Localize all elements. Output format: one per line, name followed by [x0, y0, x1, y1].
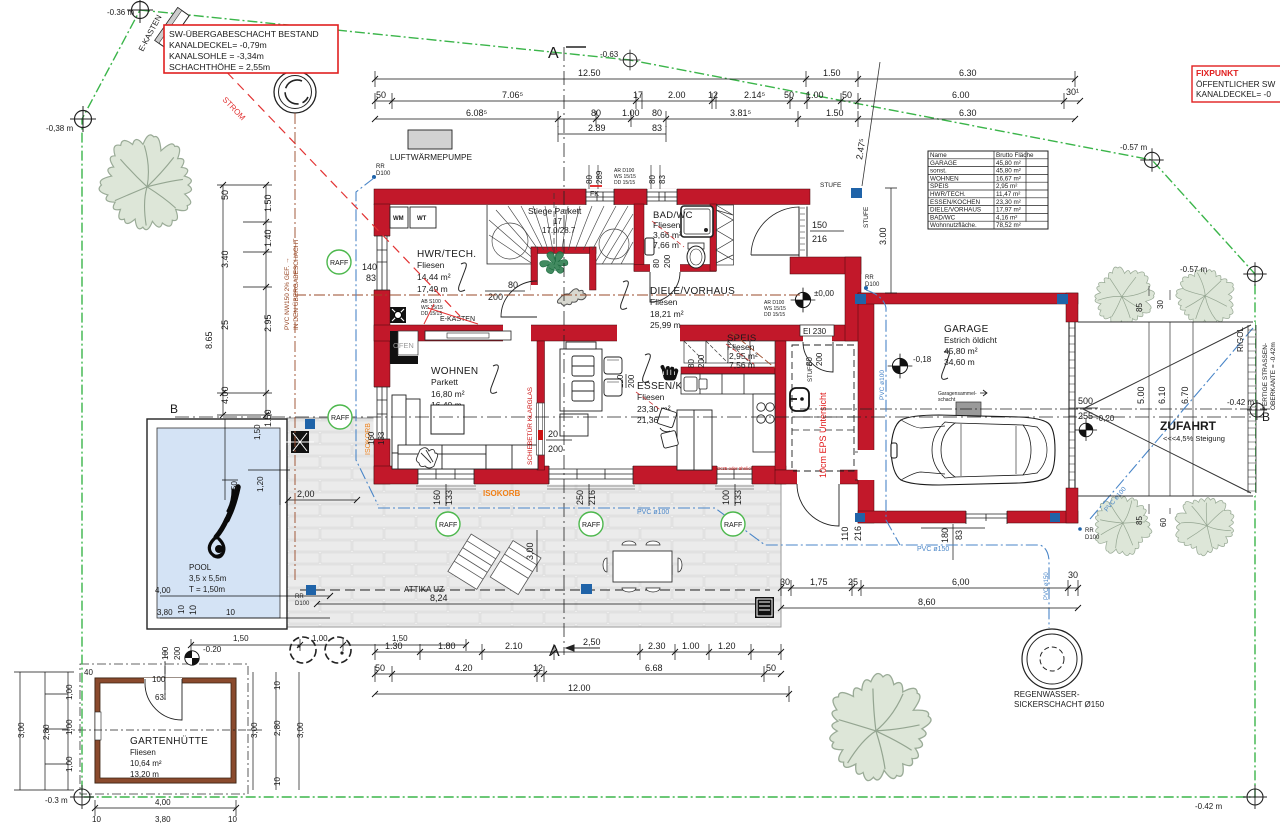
- svg-text:PVC ø100: PVC ø100: [637, 509, 669, 516]
- svg-text:1.00: 1.00: [682, 641, 700, 651]
- svg-text:D100: D100: [376, 171, 391, 177]
- svg-text:schacht: schacht: [938, 397, 956, 403]
- svg-text:10: 10: [228, 815, 237, 824]
- svg-text:14,44 m²: 14,44 m²: [417, 272, 451, 282]
- svg-text:1,50: 1,50: [233, 634, 249, 643]
- svg-text:ESSEN/KOCHEN: ESSEN/KOCHEN: [930, 199, 980, 206]
- svg-text:16,67 m²: 16,67 m²: [996, 175, 1021, 182]
- svg-text:23,30 m²: 23,30 m²: [996, 199, 1021, 206]
- svg-text:10,64 m²: 10,64 m²: [130, 759, 162, 768]
- svg-text:10: 10: [188, 605, 198, 615]
- svg-text:2,50: 2,50: [583, 637, 601, 647]
- svg-text:±0,00: ±0,00: [814, 289, 835, 298]
- svg-text:SCHIEBETÜR KLARGLAS: SCHIEBETÜR KLARGLAS: [526, 386, 534, 465]
- svg-text:4,00: 4,00: [155, 798, 171, 807]
- svg-text:1,00: 1,00: [312, 634, 328, 643]
- svg-text:85: 85: [1135, 303, 1144, 312]
- svg-text:34,60 m: 34,60 m: [944, 357, 975, 367]
- svg-text:50: 50: [784, 90, 794, 100]
- svg-text:2,95 m²: 2,95 m²: [996, 183, 1017, 190]
- svg-text:3,80: 3,80: [155, 815, 171, 824]
- svg-text:ISOKORB: ISOKORB: [483, 489, 521, 498]
- svg-text:LUFTWÄRMEPUMPE: LUFTWÄRMEPUMPE: [390, 152, 473, 162]
- svg-text:D100: D100: [865, 282, 880, 288]
- svg-text:1,50: 1,50: [253, 424, 262, 440]
- svg-text:17,49 m: 17,49 m: [417, 284, 448, 294]
- svg-text:8,60: 8,60: [918, 597, 936, 607]
- svg-text:-0.57 m: -0.57 m: [1120, 143, 1147, 152]
- svg-text:63: 63: [155, 693, 164, 702]
- svg-text:216: 216: [587, 490, 597, 505]
- svg-text:30: 30: [780, 577, 790, 587]
- svg-text:SCHACHTHÖHE = 2,55m: SCHACHTHÖHE = 2,55m: [169, 62, 270, 72]
- svg-text:EI 230: EI 230: [803, 327, 827, 336]
- svg-text:80: 80: [585, 175, 594, 184]
- svg-text:HSK35 oder ähnlich: HSK35 oder ähnlich: [713, 466, 754, 471]
- svg-text:<<<4,5% Steigung: <<<4,5% Steigung: [1163, 434, 1225, 443]
- svg-text:Parkett: Parkett: [431, 377, 459, 387]
- svg-text:1.00: 1.00: [622, 108, 640, 118]
- svg-text:PVC ø150: PVC ø150: [917, 546, 949, 553]
- svg-text:2.95: 2.95: [263, 314, 273, 332]
- svg-text:KANALSOHLE = -3,34m: KANALSOHLE = -3,34m: [169, 51, 264, 61]
- svg-text:2,00: 2,00: [297, 489, 315, 499]
- svg-text:200: 200: [663, 254, 672, 268]
- svg-text:-0,38 m: -0,38 m: [46, 124, 73, 133]
- svg-text:D100: D100: [295, 601, 310, 607]
- svg-text:Brutto Fläche: Brutto Fläche: [996, 152, 1034, 159]
- svg-text:OFEN: OFEN: [393, 341, 414, 350]
- svg-text:1.50: 1.50: [826, 108, 844, 118]
- svg-text:2,80: 2,80: [42, 724, 51, 740]
- svg-text:12.00: 12.00: [568, 683, 591, 693]
- svg-text:100: 100: [161, 646, 170, 660]
- svg-text:-0,20: -0,20: [1096, 414, 1115, 423]
- svg-text:6.68: 6.68: [645, 663, 663, 673]
- svg-text:160: 160: [367, 431, 376, 445]
- svg-text:3,00: 3,00: [296, 722, 305, 738]
- svg-text:6.30: 6.30: [959, 68, 977, 78]
- svg-text:WM: WM: [393, 216, 404, 222]
- svg-text:83: 83: [652, 123, 662, 133]
- svg-text:25: 25: [848, 577, 858, 587]
- svg-text:-0.42 m: -0.42 m: [1195, 802, 1222, 811]
- svg-text:50: 50: [376, 90, 386, 100]
- svg-text:Stiege Parkett: Stiege Parkett: [528, 206, 582, 216]
- svg-text:Wohnnutzfläche.: Wohnnutzfläche.: [930, 222, 977, 229]
- svg-text:STUFE: STUFE: [863, 206, 870, 228]
- svg-text:-0.3 m: -0.3 m: [45, 796, 68, 805]
- svg-text:RR: RR: [865, 275, 874, 281]
- svg-text:50: 50: [375, 663, 385, 673]
- svg-text:16,80 m²: 16,80 m²: [431, 389, 465, 399]
- svg-text:SICKERSCHACHT Ø150: SICKERSCHACHT Ø150: [1014, 700, 1105, 709]
- svg-text:50: 50: [230, 481, 239, 490]
- svg-text:Fliesen: Fliesen: [417, 260, 445, 270]
- svg-text:DIELE/VORHAUS: DIELE/VORHAUS: [930, 207, 981, 214]
- svg-text:2.30: 2.30: [648, 641, 666, 651]
- svg-text:-0.42 m: -0.42 m: [1227, 398, 1254, 407]
- svg-text:30¹: 30¹: [1066, 87, 1079, 97]
- svg-text:6.70: 6.70: [1180, 386, 1190, 404]
- svg-text:ZUFAHRT: ZUFAHRT: [1160, 419, 1217, 433]
- svg-text:80: 80: [652, 108, 662, 118]
- svg-text:20: 20: [548, 429, 558, 439]
- svg-text:150: 150: [812, 220, 827, 230]
- svg-text:WOHNEN: WOHNEN: [930, 175, 959, 182]
- svg-text:60: 60: [1159, 518, 1168, 527]
- svg-text:25: 25: [220, 320, 230, 330]
- svg-text:-0.36 m: -0.36 m: [107, 8, 134, 17]
- svg-text:FERTIGE STRASSEN-: FERTIGE STRASSEN-: [1262, 343, 1269, 410]
- svg-text:80: 80: [591, 108, 601, 118]
- svg-text:Estrich öldicht: Estrich öldicht: [944, 335, 998, 345]
- svg-text:250: 250: [575, 490, 585, 505]
- svg-text:A: A: [548, 45, 559, 62]
- svg-text:83: 83: [954, 530, 964, 540]
- svg-text:IN DEN ÜBERGABESCHACHT: IN DEN ÜBERGABESCHACHT: [292, 239, 300, 330]
- svg-text:40: 40: [84, 668, 93, 677]
- svg-text:Fliesen: Fliesen: [637, 392, 665, 402]
- svg-text:200: 200: [173, 646, 182, 660]
- svg-text:BAD/WC: BAD/WC: [930, 214, 956, 221]
- svg-text:2,80: 2,80: [273, 720, 282, 736]
- svg-text:2.89: 2.89: [588, 123, 606, 133]
- svg-text:50: 50: [842, 90, 852, 100]
- svg-text:50: 50: [220, 190, 230, 200]
- svg-text:WOHNEN: WOHNEN: [431, 366, 478, 377]
- svg-text:1.50: 1.50: [263, 409, 273, 427]
- svg-text:80: 80: [508, 280, 518, 290]
- svg-text:ÖFFENTLICHER SW: ÖFFENTLICHER SW: [1196, 79, 1275, 89]
- svg-text:SW-ÜBERGABESCHACHT BESTAND: SW-ÜBERGABESCHACHT BESTAND: [169, 29, 319, 39]
- svg-text:5.00: 5.00: [1136, 386, 1146, 404]
- svg-text:10: 10: [226, 608, 235, 617]
- svg-text:133: 133: [377, 431, 386, 445]
- svg-text:-0.63: -0.63: [600, 50, 619, 59]
- svg-text:6.10: 6.10: [1157, 386, 1167, 404]
- svg-text:RAFF: RAFF: [724, 522, 742, 529]
- svg-text:45,80 m²: 45,80 m²: [996, 160, 1021, 167]
- svg-text:12: 12: [533, 663, 543, 673]
- svg-text:200: 200: [488, 292, 503, 302]
- svg-text:25,99 m: 25,99 m: [650, 320, 681, 330]
- svg-text:PVC NW150 2% GEF. →: PVC NW150 2% GEF. →: [284, 257, 291, 330]
- svg-text:10: 10: [273, 777, 282, 786]
- svg-text:3.81⁵: 3.81⁵: [730, 108, 752, 118]
- svg-text:133: 133: [444, 490, 454, 505]
- svg-text:Fliesen: Fliesen: [130, 748, 156, 757]
- svg-text:8.65: 8.65: [204, 331, 214, 349]
- svg-text:RIGOL: RIGOL: [1236, 327, 1245, 352]
- svg-text:PVC ø100: PVC ø100: [879, 370, 886, 400]
- svg-text:FK: FK: [590, 191, 599, 198]
- svg-text:WT: WT: [417, 216, 427, 222]
- svg-text:4,16 m²: 4,16 m²: [996, 214, 1017, 221]
- svg-text:6.08⁵: 6.08⁵: [466, 108, 488, 118]
- svg-text:Fliesen: Fliesen: [653, 220, 681, 230]
- svg-text:RR: RR: [295, 594, 304, 600]
- svg-text:OBERKANTE = -0.42m: OBERKANTE = -0.42m: [1270, 342, 1277, 410]
- svg-text:4.20: 4.20: [455, 663, 473, 673]
- svg-text:3,5 x 5,5m: 3,5 x 5,5m: [189, 574, 227, 583]
- svg-text:PVC ø150: PVC ø150: [1044, 572, 1050, 600]
- svg-text:10: 10: [92, 815, 101, 824]
- svg-text:45,80 m²: 45,80 m²: [996, 168, 1021, 175]
- svg-text:216: 216: [853, 526, 863, 541]
- svg-text:6,00: 6,00: [952, 577, 970, 587]
- svg-text:GARAGE: GARAGE: [930, 160, 957, 167]
- svg-text:17: 17: [553, 217, 562, 226]
- svg-text:17: 17: [633, 90, 643, 100]
- svg-text:7.06⁵: 7.06⁵: [502, 90, 524, 100]
- svg-text:50: 50: [766, 663, 776, 673]
- svg-text:85: 85: [1135, 516, 1144, 525]
- svg-text:3,00: 3,00: [250, 722, 259, 738]
- svg-text:2.00: 2.00: [668, 90, 686, 100]
- svg-text:RAFF: RAFF: [331, 415, 349, 422]
- svg-text:REGENWASSER-: REGENWASSER-: [1014, 690, 1080, 699]
- svg-text:3,66 m²: 3,66 m²: [653, 230, 682, 240]
- svg-text:11,47 m²: 11,47 m²: [996, 191, 1020, 198]
- svg-text:RR: RR: [376, 164, 385, 170]
- svg-text:HWR/TECH.: HWR/TECH.: [930, 191, 966, 198]
- svg-text:110: 110: [840, 527, 850, 541]
- svg-text:12.50: 12.50: [578, 68, 601, 78]
- svg-text:RAFF: RAFF: [330, 260, 348, 267]
- svg-text:GARTENHÜTTE: GARTENHÜTTE: [130, 735, 208, 747]
- svg-text:140: 140: [362, 262, 377, 272]
- svg-text:133: 133: [733, 490, 743, 505]
- svg-text:1,75: 1,75: [810, 577, 828, 587]
- svg-text:80: 80: [648, 175, 657, 184]
- svg-text:216: 216: [812, 234, 827, 244]
- svg-text:KANALDECKEL= -0: KANALDECKEL= -0: [1196, 89, 1271, 99]
- svg-text:3.00: 3.00: [878, 227, 888, 245]
- svg-text:RAFF: RAFF: [582, 522, 600, 529]
- svg-text:FIXPUNKT: FIXPUNKT: [1196, 68, 1239, 78]
- svg-text:D100: D100: [1085, 535, 1100, 541]
- svg-text:SPEIS: SPEIS: [930, 183, 949, 190]
- svg-text:10cm EPS Untersicht: 10cm EPS Untersicht: [818, 392, 828, 478]
- svg-text:DD 15/15: DD 15/15: [614, 180, 635, 186]
- svg-text:RR: RR: [1085, 528, 1094, 534]
- svg-text:4.00: 4.00: [220, 386, 230, 404]
- svg-text:12: 12: [708, 90, 718, 100]
- svg-text:1.40: 1.40: [263, 229, 273, 247]
- svg-text:STUFE: STUFE: [808, 362, 814, 382]
- svg-text:17,97 m²: 17,97 m²: [996, 207, 1021, 214]
- svg-text:Name: Name: [930, 152, 947, 159]
- svg-text:3,00: 3,00: [17, 722, 26, 738]
- svg-text:1.00: 1.00: [806, 90, 824, 100]
- svg-text:80: 80: [652, 259, 661, 268]
- svg-text:1,00: 1,00: [65, 756, 74, 772]
- svg-text:13,20 m: 13,20 m: [130, 770, 159, 779]
- svg-text:6.00: 6.00: [952, 90, 970, 100]
- svg-text:1.30: 1.30: [385, 641, 403, 651]
- svg-text:-0,18: -0,18: [913, 355, 932, 364]
- svg-text:3.40: 3.40: [220, 250, 230, 268]
- svg-text:83: 83: [658, 175, 667, 184]
- svg-text:100: 100: [721, 490, 731, 505]
- svg-text:2.14⁵: 2.14⁵: [744, 90, 766, 100]
- svg-text:1,00: 1,00: [65, 684, 74, 700]
- svg-text:1.20: 1.20: [718, 641, 736, 651]
- svg-text:POOL: POOL: [189, 563, 212, 572]
- svg-text:DD 15/15: DD 15/15: [764, 312, 785, 318]
- svg-text:3,00: 3,00: [525, 542, 535, 560]
- svg-text:7,56 m: 7,56 m: [729, 360, 755, 370]
- svg-text:1,20: 1,20: [256, 476, 265, 492]
- svg-text:T = 1,50m: T = 1,50m: [189, 585, 225, 594]
- svg-text:KANALDECKEL= -0,79m: KANALDECKEL= -0,79m: [169, 40, 267, 50]
- svg-text:80: 80: [687, 359, 696, 368]
- svg-text:8,24: 8,24: [430, 593, 448, 603]
- svg-text:17.0/28.7: 17.0/28.7: [542, 226, 576, 235]
- svg-text:289: 289: [595, 170, 604, 184]
- svg-text:7,66 m: 7,66 m: [653, 240, 679, 250]
- svg-text:200: 200: [627, 374, 636, 388]
- svg-text:30: 30: [1068, 570, 1078, 580]
- svg-text:6.30: 6.30: [959, 108, 977, 118]
- svg-text:4,00: 4,00: [155, 586, 171, 595]
- svg-text:200: 200: [548, 444, 563, 454]
- svg-text:10: 10: [273, 681, 282, 690]
- svg-text:sonst.: sonst.: [930, 168, 947, 175]
- svg-text:200: 200: [815, 352, 824, 366]
- svg-text:-0.20: -0.20: [203, 645, 222, 654]
- svg-text:1.50: 1.50: [823, 68, 841, 78]
- svg-text:200: 200: [697, 354, 706, 368]
- svg-text:B: B: [170, 402, 178, 416]
- svg-text:500: 500: [1078, 396, 1093, 406]
- svg-text:78,52 m²: 78,52 m²: [996, 222, 1021, 229]
- svg-text:-0.57 m: -0.57 m: [1180, 265, 1207, 274]
- svg-text:180: 180: [940, 528, 950, 543]
- svg-text:2.10: 2.10: [505, 641, 523, 651]
- svg-text:1.50: 1.50: [263, 194, 273, 212]
- svg-text:RAFF: RAFF: [439, 522, 457, 529]
- svg-text:STUFE: STUFE: [820, 182, 842, 189]
- svg-text:10: 10: [177, 605, 186, 614]
- svg-text:1.80: 1.80: [438, 641, 456, 651]
- svg-text:GARAGE: GARAGE: [944, 324, 989, 335]
- svg-text:HWR/TECH.: HWR/TECH.: [417, 249, 476, 260]
- svg-text:100: 100: [152, 675, 166, 684]
- svg-text:3,80: 3,80: [157, 608, 173, 617]
- svg-text:83: 83: [366, 273, 376, 283]
- svg-text:1,00: 1,00: [65, 719, 74, 735]
- svg-text:30: 30: [1156, 300, 1165, 309]
- svg-text:18,21 m²: 18,21 m²: [650, 309, 684, 319]
- svg-text:160: 160: [432, 490, 442, 505]
